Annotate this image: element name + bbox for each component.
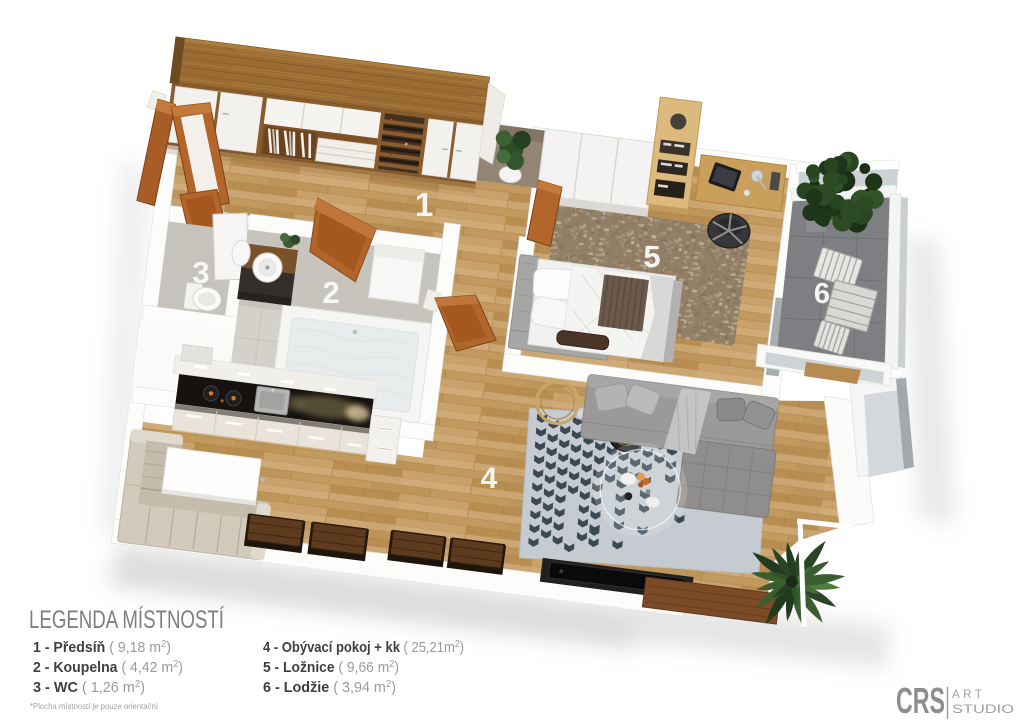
- svg-text:3: 3: [192, 255, 209, 290]
- svg-text:1: 1: [415, 186, 433, 223]
- svg-text:5 - Ložnice ( 9,66 m2): 5 - Ložnice ( 9,66 m2): [263, 659, 399, 676]
- svg-text:3 - WC ( 1,26 m2): 3 - WC ( 1,26 m2): [33, 679, 145, 696]
- svg-text:*Plocha místností je pouze ori: *Plocha místností je pouze orientační: [30, 701, 159, 711]
- svg-text:5: 5: [643, 239, 660, 274]
- svg-text:STUDIO: STUDIO: [952, 704, 1014, 716]
- svg-text:CRS: CRS: [896, 680, 945, 721]
- svg-text:2 - Koupelna ( 4,42 m2): 2 - Koupelna ( 4,42 m2): [33, 659, 183, 676]
- svg-text:2: 2: [322, 275, 339, 310]
- svg-text:6: 6: [814, 278, 830, 310]
- svg-text:4 - Obývací pokoj + kk ( 25,21: 4 - Obývací pokoj + kk ( 25,21m2): [263, 639, 464, 656]
- svg-text:4: 4: [481, 462, 498, 495]
- svg-text:1 - Předsíň ( 9,18 m2): 1 - Předsíň ( 9,18 m2): [33, 639, 171, 656]
- svg-text:ART: ART: [952, 689, 985, 701]
- svg-text:6 - Lodžie ( 3,94 m2): 6 - Lodžie ( 3,94 m2): [263, 679, 396, 696]
- svg-text:LEGENDA MÍSTNOSTÍ: LEGENDA MÍSTNOSTÍ: [29, 605, 224, 634]
